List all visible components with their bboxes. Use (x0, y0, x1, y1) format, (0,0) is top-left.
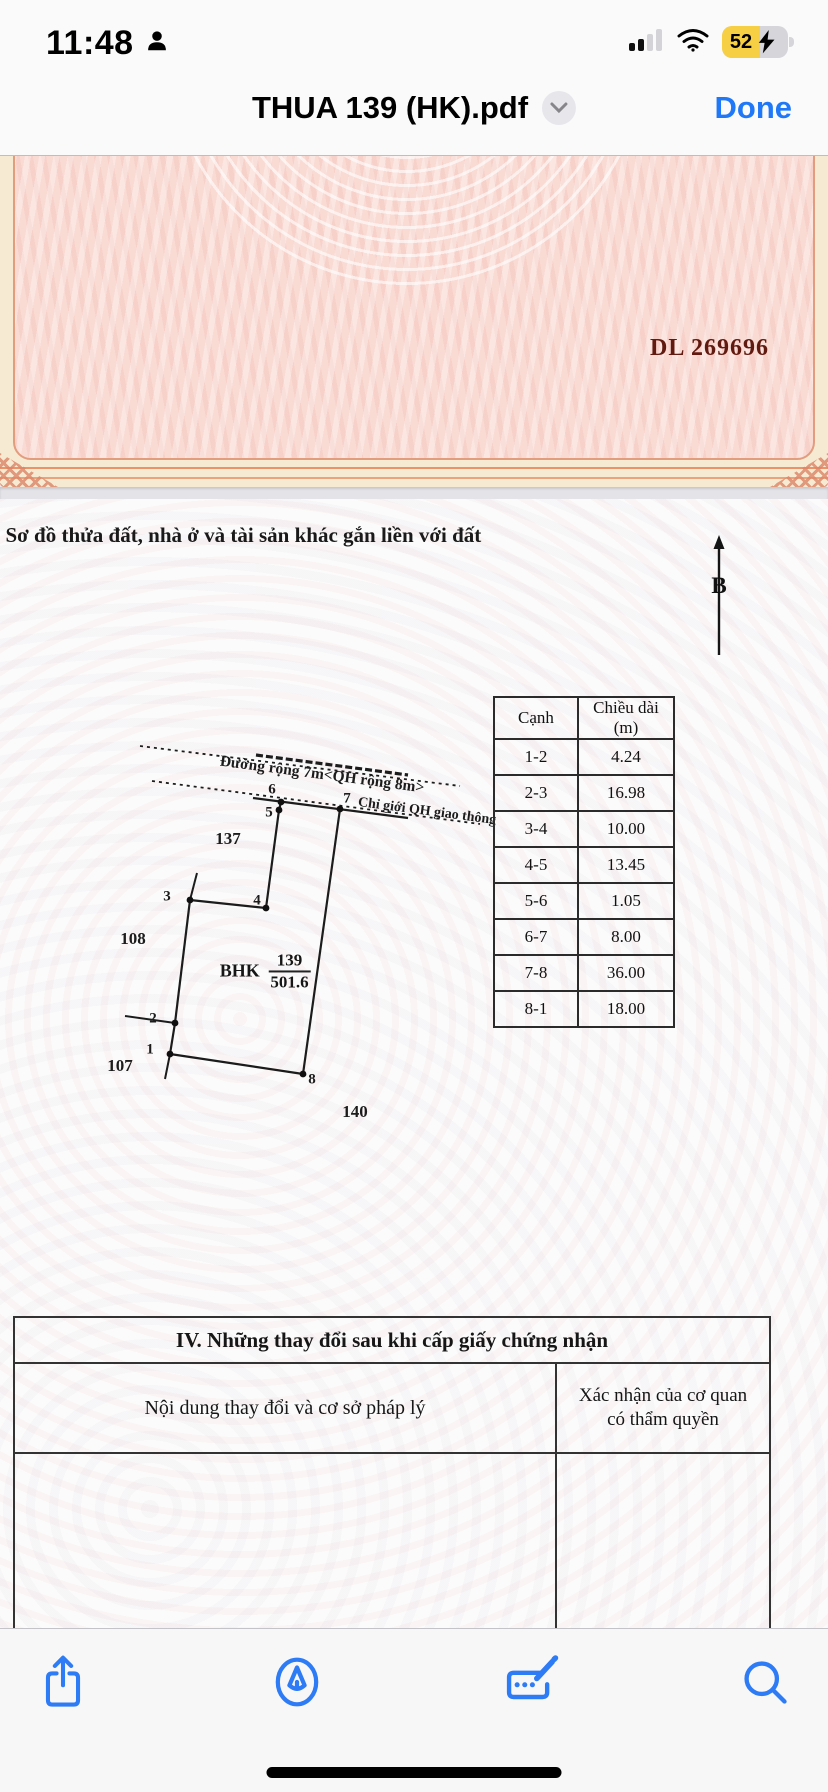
table-row: 3-410.00 (494, 811, 674, 847)
table-row: 6-78.00 (494, 919, 674, 955)
table-row: 8-118.00 (494, 991, 674, 1027)
edge-cell: 3-4 (494, 811, 578, 847)
section-iv-col1-header: Nội dung thay đổi và cơ sở pháp lý (15, 1364, 557, 1454)
edge-cell: 6-7 (494, 919, 578, 955)
section-iv-body-left-cell (15, 1454, 557, 1629)
charging-bolt-icon (758, 30, 776, 59)
vertex-label-5: 5 (265, 805, 273, 822)
bottom-toolbar (0, 1628, 828, 1792)
pdf-content[interactable]: DL 269696 . Sơ đồ thửa đất, nhà ở và tài… (0, 155, 828, 1628)
title-bar: THUA 139 (HK).pdf Done (0, 62, 828, 155)
edge-table-header-length: Chiều dài (m) (578, 697, 674, 739)
markup-button[interactable] (268, 1655, 326, 1713)
section-iv-col2-header: Xác nhận của cơ quan có thẩm quyền (557, 1364, 769, 1454)
section-iv-body-right-cell (557, 1454, 769, 1629)
edge-cell: 4-5 (494, 847, 578, 883)
cellular-signal-icon (628, 27, 664, 58)
plot-area: 501.6 (270, 972, 308, 992)
done-button[interactable]: Done (715, 90, 793, 126)
vertex-label-7: 7 (343, 791, 351, 808)
length-cell: 13.45 (578, 847, 674, 883)
ios-pdf-preview: 11:48 (0, 0, 828, 1792)
table-row: 7-836.00 (494, 955, 674, 991)
edge-cell: 8-1 (494, 991, 578, 1027)
vertex-label-6: 6 (268, 782, 276, 799)
autofill-signature-button[interactable] (502, 1655, 560, 1713)
vertex-dots (167, 799, 344, 1078)
edge-cell: 2-3 (494, 775, 578, 811)
status-bar: 11:48 (0, 0, 828, 62)
page-separator (0, 487, 828, 499)
edge-cell: 7-8 (494, 955, 578, 991)
edge-3-2 (175, 900, 190, 1023)
edge-extension-above-3 (190, 873, 197, 900)
edge-cell: 1-2 (494, 739, 578, 775)
edge-2-1 (170, 1023, 175, 1054)
section-iv-table: IV. Những thay đổi sau khi cấp giấy chứn… (13, 1316, 771, 1629)
edge-7-8 (303, 809, 340, 1074)
adjacent-parcel-140: 140 (342, 1102, 368, 1122)
length-cell: 18.00 (578, 991, 674, 1027)
table-row: 5-61.05 (494, 883, 674, 919)
edge-cell: 5-6 (494, 883, 578, 919)
markup-pen-icon (270, 1653, 324, 1716)
battery-indicator: 52 (722, 26, 794, 58)
table-row: 1-24.24 (494, 739, 674, 775)
plot-number: 139 (269, 950, 311, 972)
vertex-label-1: 1 (146, 1042, 154, 1059)
length-cell: 10.00 (578, 811, 674, 847)
plot-identifier: BHK 139 501.6 (220, 950, 311, 991)
wifi-icon (676, 27, 710, 58)
edge-1-8 (170, 1054, 303, 1074)
adjacent-parcel-107: 107 (107, 1056, 133, 1076)
table-row: 4-513.45 (494, 847, 674, 883)
search-button[interactable] (736, 1655, 794, 1713)
document-title-menu[interactable]: THUA 139 (HK).pdf (252, 90, 576, 126)
certificate-serial-number: DL 269696 (650, 335, 769, 362)
length-cell: 1.05 (578, 883, 674, 919)
table-row: 2-316.98 (494, 775, 674, 811)
length-cell: 4.24 (578, 739, 674, 775)
clock: 11:48 (46, 24, 134, 63)
person-icon (144, 28, 170, 59)
length-cell: 8.00 (578, 919, 674, 955)
search-icon (739, 1655, 791, 1714)
plot-number-area-fraction: 139 501.6 (269, 950, 311, 991)
battery-percent: 52 (722, 26, 760, 58)
vertex-label-4: 4 (253, 893, 261, 910)
edge-length-table: Cạnh Chiều dài (m) 1-24.24 2-316.98 3-41… (493, 696, 675, 1028)
adjacent-parcel-137: 137 (215, 829, 241, 849)
guilloche-rings-pattern (157, 156, 657, 294)
share-icon (37, 1653, 89, 1716)
home-indicator[interactable] (267, 1767, 562, 1778)
edge-extension-below-1 (165, 1054, 170, 1079)
certificate-border-lines (0, 467, 828, 479)
document-title: THUA 139 (HK).pdf (252, 90, 528, 126)
length-cell: 36.00 (578, 955, 674, 991)
autofill-signature-icon (501, 1654, 561, 1715)
certificate-guilloche-background: DL 269696 (13, 156, 815, 460)
adjacent-parcel-108: 108 (120, 929, 146, 949)
section-iv-title: IV. Những thay đổi sau khi cấp giấy chứn… (15, 1318, 769, 1364)
vertex-label-3: 3 (163, 889, 171, 906)
certificate-page: DL 269696 (0, 156, 828, 487)
plot-land-use-code: BHK (220, 961, 260, 982)
share-button[interactable] (34, 1655, 92, 1713)
chevron-down-icon[interactable] (542, 91, 576, 125)
vertex-label-8: 8 (308, 1072, 316, 1089)
vertex-label-2: 2 (149, 1011, 157, 1028)
cadastral-page: . Sơ đồ thửa đất, nhà ở và tài sản khác … (0, 499, 828, 1629)
length-cell: 16.98 (578, 775, 674, 811)
edge-table-header-canh: Cạnh (494, 697, 578, 739)
